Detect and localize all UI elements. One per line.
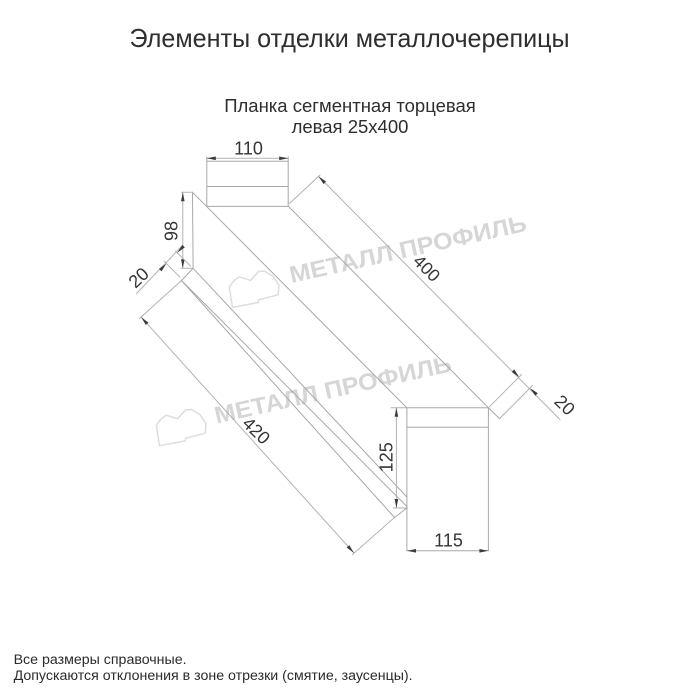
svg-text:МЕТАЛЛ ПРОФИЛЬ: МЕТАЛЛ ПРОФИЛЬ xyxy=(287,210,529,288)
svg-text:98: 98 xyxy=(161,221,181,241)
svg-text:110: 110 xyxy=(234,138,263,158)
svg-text:20: 20 xyxy=(551,391,579,419)
svg-text:125: 125 xyxy=(376,442,396,472)
svg-text:20: 20 xyxy=(125,264,153,292)
svg-text:115: 115 xyxy=(434,531,463,551)
